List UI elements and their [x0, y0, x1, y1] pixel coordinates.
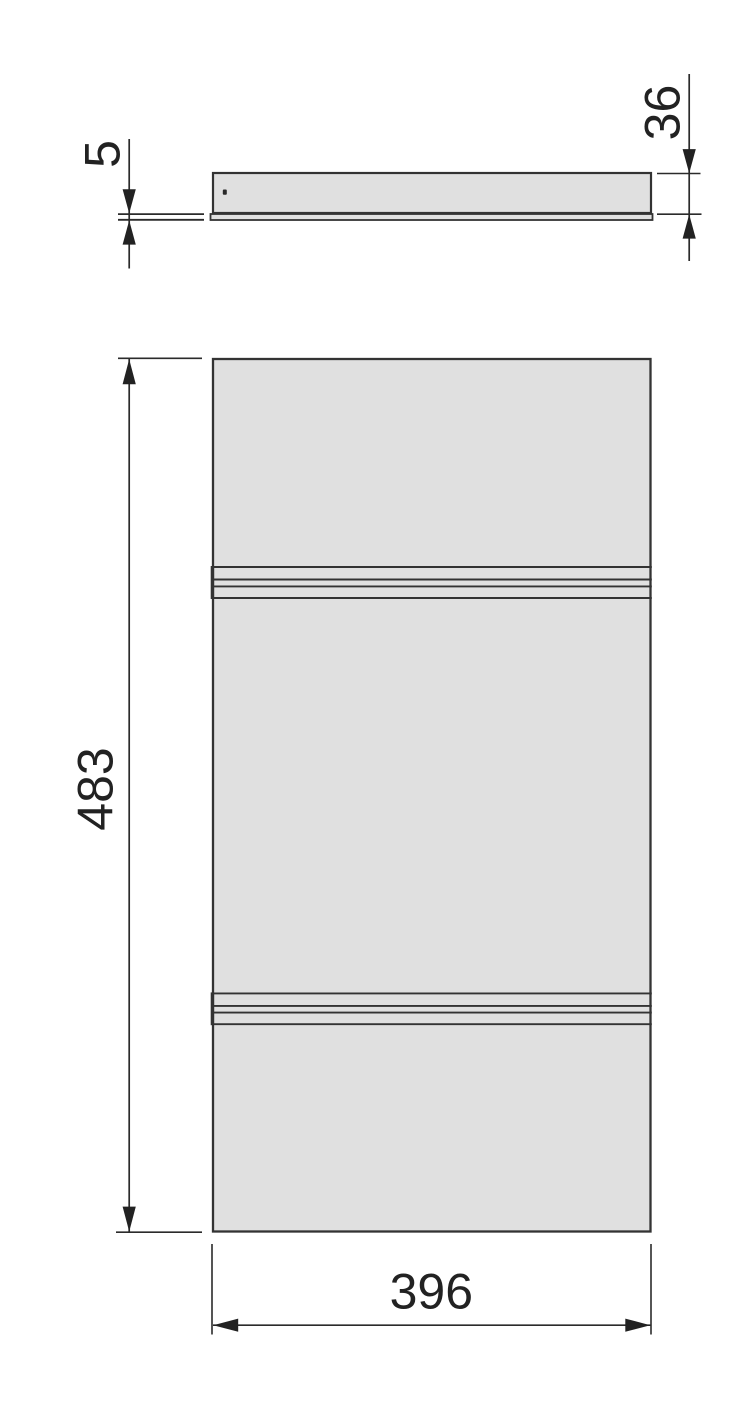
svg-text:483: 483: [68, 747, 124, 830]
svg-text:396: 396: [390, 1264, 473, 1320]
svg-text:5: 5: [75, 140, 131, 168]
svg-text:36: 36: [635, 85, 691, 141]
